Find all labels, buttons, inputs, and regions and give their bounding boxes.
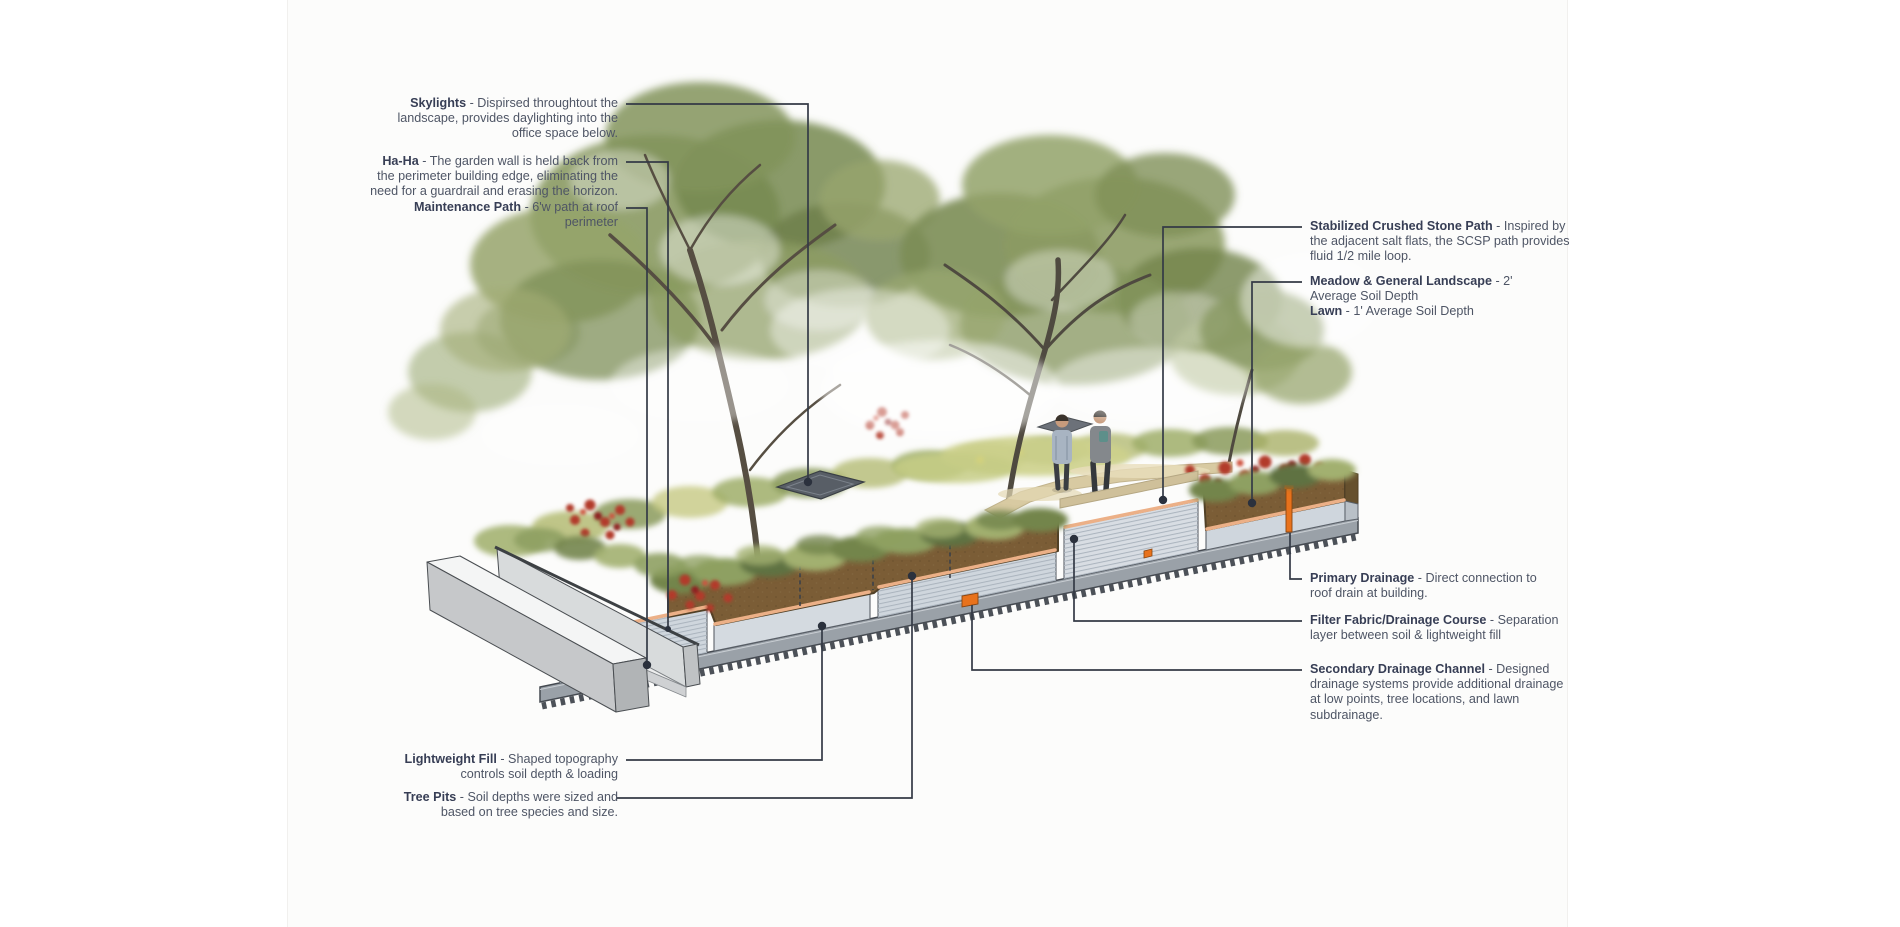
label-lightweight-fill-term: Lightweight Fill	[405, 752, 497, 766]
label-meadow-lawn: Meadow & General Landscape - 2' Average …	[1310, 274, 1560, 320]
label-filter-fabric-term: Filter Fabric/Drainage Course	[1310, 613, 1486, 627]
label-haha-term: Ha-Ha	[382, 154, 418, 168]
label-primary-drainage-term: Primary Drainage	[1310, 571, 1414, 585]
label-filter-fabric: Filter Fabric/Drainage Course - Separati…	[1310, 613, 1565, 643]
label-tree-pits: Tree Pits - Soil depths were sized and b…	[390, 790, 618, 820]
label-lightweight-fill: Lightweight Fill - Shaped topography con…	[396, 752, 618, 782]
label-maintenance-path-term: Maintenance Path	[414, 200, 521, 214]
green-roof-diagram-page: Skylights - Dispirsed throughtout the la…	[0, 0, 1900, 927]
label-haha: Ha-Ha - The garden wall is held back fro…	[366, 154, 618, 200]
label-maintenance-path-text: - 6'w path at roof perimeter	[521, 200, 618, 229]
label-maintenance-path: Maintenance Path - 6'w path at roof peri…	[406, 200, 618, 230]
drain-channel-mid	[1144, 549, 1152, 558]
label-lawn-term: Lawn	[1310, 304, 1342, 318]
label-primary-drainage: Primary Drainage - Direct connection to …	[1310, 571, 1560, 601]
haha-wall-end	[683, 644, 700, 687]
label-skylights: Skylights - Dispirsed throughtout the la…	[378, 96, 618, 142]
label-tree-pits-text: - Soil depths were sized and based on tr…	[441, 790, 618, 819]
label-stabilized-crushed-stone-path: Stabilized Crushed Stone Path - Inspired…	[1310, 219, 1572, 265]
roof-section-illustration	[0, 0, 1900, 927]
primary-drainage-pipe	[1285, 485, 1294, 532]
fill-end-cap	[1345, 501, 1358, 521]
label-tree-pits-term: Tree Pits	[404, 790, 457, 804]
label-scsp-term: Stabilized Crushed Stone Path	[1310, 219, 1493, 233]
label-secondary-drainage: Secondary Drainage Channel - Designed dr…	[1310, 662, 1568, 723]
label-secondary-drainage-term: Secondary Drainage Channel	[1310, 662, 1485, 676]
leader-secondary-drainage	[972, 605, 1302, 670]
label-lawn-text: - 1' Average Soil Depth	[1342, 304, 1474, 318]
label-meadow-term: Meadow & General Landscape	[1310, 274, 1492, 288]
secondary-drainage-channel-element	[962, 593, 978, 607]
label-skylights-term: Skylights	[410, 96, 466, 110]
